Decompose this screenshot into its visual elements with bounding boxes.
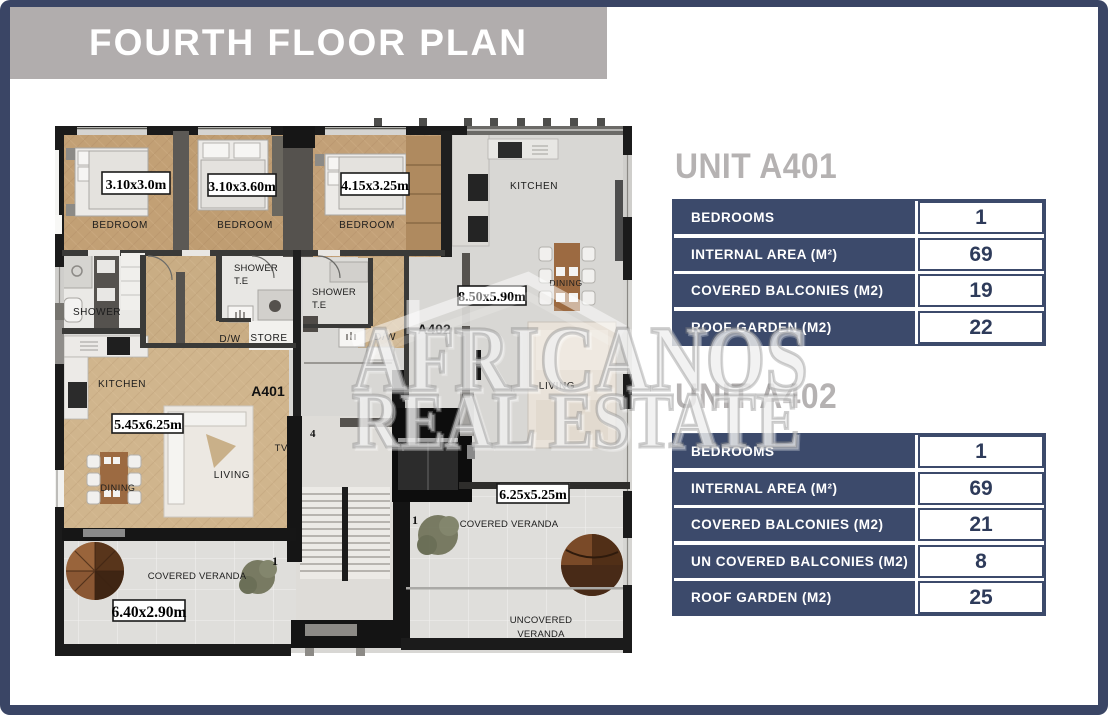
svg-text:6.40x2.90m: 6.40x2.90m [112,604,187,621]
svg-text:STORE: STORE [250,333,287,344]
svg-text:COVERED VERANDA: COVERED VERANDA [148,571,247,582]
svg-text:TV: TV [275,443,288,454]
svg-text:SHOWER: SHOWER [234,263,278,274]
svg-text:LIVING: LIVING [539,381,575,392]
svg-text:BEDROOM: BEDROOM [217,220,273,231]
svg-text:4: 4 [310,428,316,440]
svg-text:A402: A402 [417,321,451,337]
svg-text:SHOWER: SHOWER [312,287,356,298]
svg-text:D/W: D/W [374,331,396,343]
svg-text:A401: A401 [251,383,285,399]
svg-text:6.25x5.25m: 6.25x5.25m [499,488,567,503]
svg-text:KITCHEN: KITCHEN [510,181,558,192]
svg-text:BEDROOM: BEDROOM [339,220,395,231]
svg-text:5.45x6.25m: 5.45x6.25m [114,418,182,433]
svg-text:COVERED VERANDA: COVERED VERANDA [460,519,559,530]
svg-text:BEDROOM: BEDROOM [92,220,148,231]
svg-text:LIVING: LIVING [214,470,250,481]
svg-text:1: 1 [412,513,418,527]
svg-text:D/W: D/W [219,334,240,345]
svg-text:3.10x3.0m: 3.10x3.0m [106,178,167,193]
svg-text:UNCOVERED: UNCOVERED [510,615,573,626]
svg-text:4.15x3.25m: 4.15x3.25m [341,179,409,194]
svg-text:3.10x3.60m: 3.10x3.60m [208,180,276,195]
svg-text:VERANDA: VERANDA [517,629,565,640]
svg-text:DINING: DINING [100,483,135,493]
svg-text:1: 1 [272,554,278,568]
svg-text:8.50x5.90m: 8.50x5.90m [458,290,526,305]
svg-text:KITCHEN: KITCHEN [98,379,146,390]
svg-text:T.E: T.E [312,300,326,311]
svg-text:SHOWER: SHOWER [73,307,121,318]
svg-text:DINING: DINING [549,278,582,288]
svg-text:T.E: T.E [234,276,248,287]
